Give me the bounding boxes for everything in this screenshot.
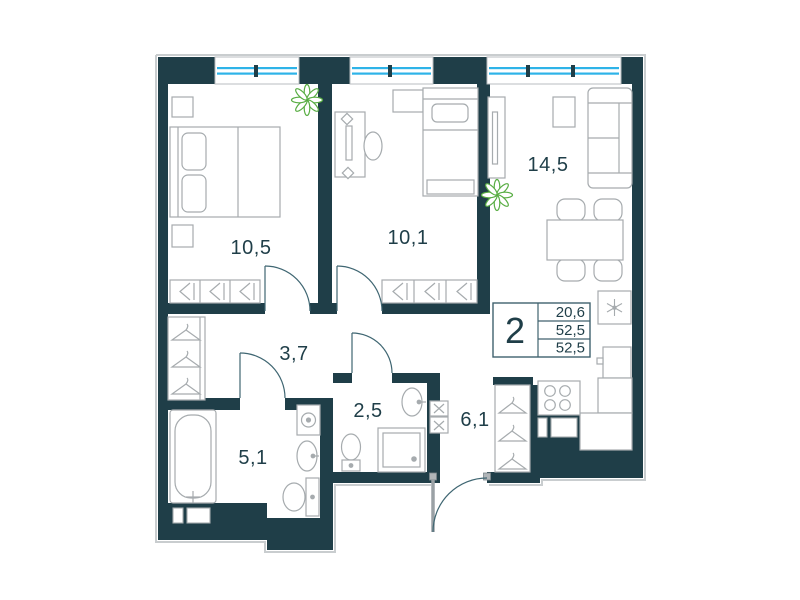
plant-icon [292,85,323,116]
counter-icon [580,413,632,450]
dining-set-icon [547,199,623,281]
total-area-value: 52,5 [556,322,585,339]
closet-icon [170,280,260,303]
nightstand-icon [172,97,193,117]
desk-icon [335,112,365,179]
floor-plan-page: 10,5 10,1 14,5 3,7 2,5 6,1 5,1 2 20,6 52… [0,0,800,600]
chair-icon [594,259,622,281]
window-icon [215,57,299,84]
window-icon [487,57,621,84]
sofa-icon [588,88,632,188]
bedroom2-area-label: 10,1 [388,227,429,249]
declared-area-value: 52,5 [556,340,585,357]
corridor-area-label: 6,1 [460,409,489,431]
bedroom1-furniture [170,97,280,303]
toilet-icon [342,434,361,471]
wc-area-label: 2,5 [353,400,382,422]
kitchen-living-area-label: 14,5 [528,154,569,176]
sink-icon [297,441,319,471]
closet-icon [382,280,477,303]
table-icon [547,220,623,260]
sink-icon [402,388,426,416]
washing-machine-icon [297,405,320,435]
tv-stand-icon [488,97,505,178]
chair-icon [594,199,622,221]
door-bedroom1 [265,266,310,311]
rooms-count-label: 2 [505,310,525,351]
double-bed-icon [170,127,280,217]
chair-icon [364,132,382,160]
floor-plan: 10,5 10,1 14,5 3,7 2,5 6,1 5,1 2 20,6 52… [0,0,800,600]
door-bathroom [240,353,285,398]
bedroom1-area-label: 10,5 [231,237,272,259]
nightstand-icon [172,225,193,247]
windows [215,57,621,84]
corridor-wardrobe-icon [495,385,530,472]
kitchen-sink-unit-icon [597,347,631,378]
bathroom-area-label: 5,1 [238,447,267,469]
cabinet-icon [393,90,423,112]
washer-dryer-icon [430,401,448,433]
apartment-info-box: 2 20,6 52,5 52,5 [493,303,590,357]
counter-icon [598,378,632,413]
stove-icon [538,381,580,415]
shower-icon [378,428,425,472]
fridge-icon [598,291,631,324]
toilet-icon [283,478,319,516]
bathtub-icon [170,410,216,503]
side-table-icon [553,97,575,127]
hallway-wardrobe-icon [168,317,205,400]
door-bedroom2 [337,266,382,311]
chair-icon [557,199,585,221]
chair-icon [557,259,585,281]
window-icon [350,57,433,84]
single-bed-icon [423,88,478,196]
hallway-area-label: 3,7 [279,343,308,365]
living-area-value: 20,6 [556,304,585,321]
door-wc [352,333,392,373]
plant-icon [482,180,513,211]
